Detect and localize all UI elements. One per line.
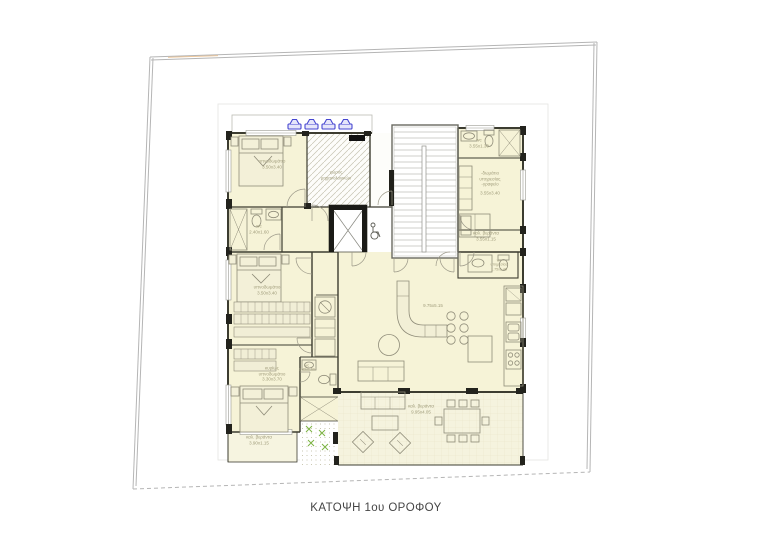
floor-plan-drawing [0, 0, 768, 534]
label-wc-left: wc2.40x1.60 [249, 223, 269, 234]
wheelchair-icon [371, 223, 380, 239]
mech-duct-block [349, 135, 365, 141]
label-bedroom2: υπνοδωμάτιο3.50x3.40 [254, 284, 281, 295]
bed-master [231, 386, 297, 432]
drawing-caption: ΚΑΤΟΨΗ 1ου ΟΡΟΦΟΥ [310, 502, 441, 514]
floor-plan-page: υπνοδωμάτιο3.50x3.40 χώροςμηχανολογικών … [0, 0, 768, 534]
label-bedroom1: υπνοδωμάτιο3.50x3.40 [259, 158, 286, 169]
label-veranda-main: καλ. βεράντα9.95x4.05 [408, 403, 434, 414]
label-wc-service: wc υπηρεσίας 1.75x1.40 [491, 258, 508, 271]
label-service-room: -δωμάτιο υπηρεσίας -γραφείο 3.55x3.40 [479, 170, 500, 196]
label-living: 9.75x5.15 [423, 303, 443, 309]
planter-hatch [300, 421, 338, 465]
label-wc-mid: wc2.45x1.60 [299, 364, 315, 373]
label-wc-top: wc3.55x1.30 [469, 137, 489, 148]
label-veranda-right: καλ. βεράντα3.55x1.15 [473, 230, 499, 241]
label-master-bedroom: κυρίως υπνοδωμάτιο 3.30x3.70 [259, 366, 286, 383]
stair-wall-block [389, 170, 394, 206]
label-mechanical: χώροςμηχανολογικών [321, 169, 352, 180]
elevator [329, 205, 380, 252]
label-veranda-left: καλ. βεράντα3.90x1.15 [246, 434, 272, 445]
